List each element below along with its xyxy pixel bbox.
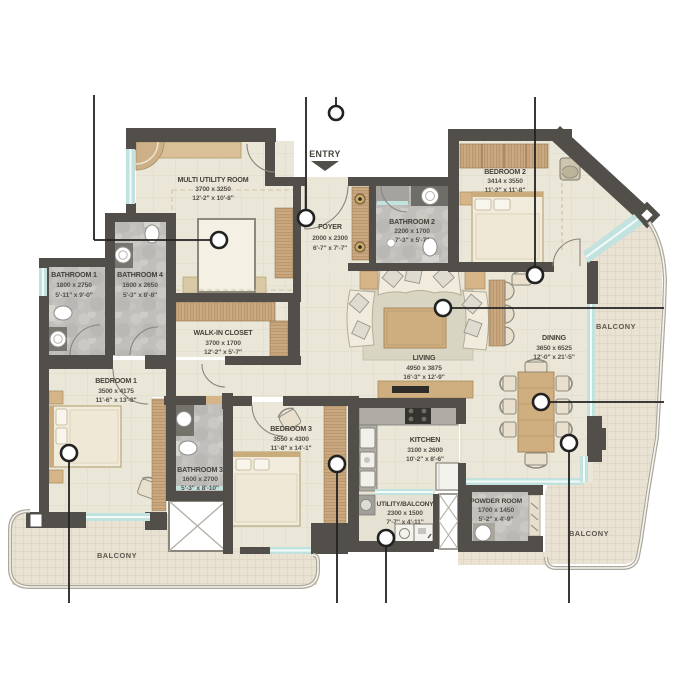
- svg-text:5'-11" x 9'-0": 5'-11" x 9'-0": [55, 292, 93, 299]
- svg-text:BATHROOM 2: BATHROOM 2: [389, 218, 435, 226]
- svg-text:LIVING: LIVING: [413, 354, 436, 362]
- svg-text:BALCONY: BALCONY: [569, 529, 609, 538]
- svg-text:11'-6" x 13'-8": 11'-6" x 13'-8": [95, 397, 136, 404]
- svg-text:3700 x 3250: 3700 x 3250: [195, 186, 231, 193]
- svg-text:3700 x 1700: 3700 x 1700: [205, 340, 241, 347]
- svg-text:4950 x 3875: 4950 x 3875: [406, 365, 442, 372]
- svg-text:BALCONY: BALCONY: [596, 322, 636, 331]
- svg-text:3414 x 3550: 3414 x 3550: [487, 178, 523, 185]
- svg-text:3100 x 2600: 3100 x 2600: [407, 447, 443, 454]
- svg-text:2200 x 1700: 2200 x 1700: [394, 228, 430, 235]
- svg-text:BEDROOM 3: BEDROOM 3: [270, 425, 312, 433]
- svg-text:POWDER ROOM: POWDER ROOM: [470, 498, 522, 505]
- svg-text:3500 x 4175: 3500 x 4175: [98, 388, 134, 395]
- svg-text:5'-3" x 8'-8": 5'-3" x 8'-8": [123, 292, 157, 299]
- svg-text:UTILITY/BALCONY: UTILITY/BALCONY: [376, 501, 434, 508]
- svg-text:12'-2" x 10'-8": 12'-2" x 10'-8": [192, 195, 233, 202]
- svg-text:BATHROOM 3: BATHROOM 3: [177, 466, 223, 474]
- svg-text:3650 x 6525: 3650 x 6525: [536, 345, 572, 352]
- svg-text:7'-7" x 4'-11": 7'-7" x 4'-11": [386, 519, 424, 526]
- svg-text:FOYER: FOYER: [318, 223, 342, 231]
- svg-text:KITCHEN: KITCHEN: [410, 436, 441, 444]
- svg-text:7'-3" x 5'-7": 7'-3" x 5'-7": [395, 237, 429, 244]
- svg-text:DINING: DINING: [542, 334, 567, 342]
- svg-text:6'-7" x 7'-7": 6'-7" x 7'-7": [313, 245, 347, 252]
- svg-text:12'-0" x 21'-5": 12'-0" x 21'-5": [533, 354, 574, 361]
- svg-text:ENTRY: ENTRY: [309, 149, 341, 159]
- svg-text:3550 x 4300: 3550 x 4300: [273, 436, 309, 443]
- svg-text:2300 x 1500: 2300 x 1500: [387, 510, 423, 517]
- svg-text:WALK-IN CLOSET: WALK-IN CLOSET: [194, 329, 254, 337]
- svg-text:16'-3" x 12'-9": 16'-3" x 12'-9": [403, 374, 444, 381]
- svg-text:1600 x 2650: 1600 x 2650: [122, 282, 158, 289]
- svg-text:1700 x 1450: 1700 x 1450: [478, 507, 515, 514]
- svg-text:1600 x 2700: 1600 x 2700: [182, 476, 218, 483]
- svg-text:10'-2" x 8'-6": 10'-2" x 8'-6": [406, 456, 444, 463]
- svg-text:5'-3" x 8'-10": 5'-3" x 8'-10": [181, 485, 219, 492]
- svg-text:BALCONY: BALCONY: [97, 551, 137, 560]
- svg-text:MULTI UTILITY ROOM: MULTI UTILITY ROOM: [177, 176, 248, 184]
- svg-text:2000 x 2300: 2000 x 2300: [312, 235, 348, 242]
- svg-text:BEDROOM 1: BEDROOM 1: [95, 377, 137, 385]
- svg-text:BEDROOM 2: BEDROOM 2: [484, 168, 526, 176]
- svg-text:1800 x 2750: 1800 x 2750: [56, 282, 92, 289]
- svg-text:BATHROOM 1: BATHROOM 1: [51, 271, 97, 279]
- svg-text:11'-8" x 14'-1": 11'-8" x 14'-1": [270, 445, 311, 452]
- svg-text:BATHROOM 4: BATHROOM 4: [117, 271, 163, 279]
- svg-text:5'-2" x 4'-9": 5'-2" x 4'-9": [479, 516, 514, 523]
- svg-text:12'-2" x 5'-7": 12'-2" x 5'-7": [204, 349, 242, 356]
- svg-text:11'-2" x 11'-8": 11'-2" x 11'-8": [485, 187, 526, 194]
